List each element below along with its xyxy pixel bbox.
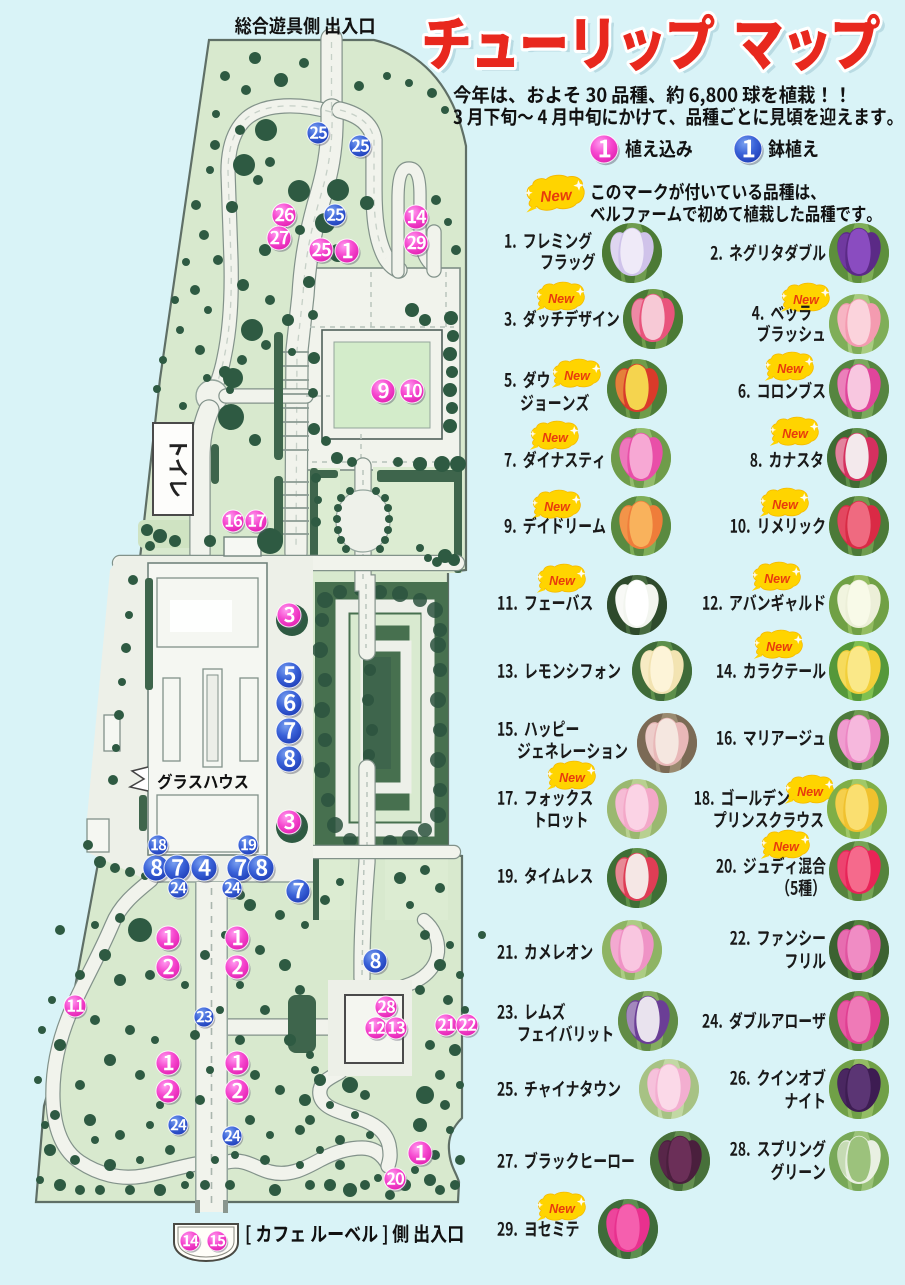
svg-text:New: New — [559, 771, 586, 785]
svg-text:New: New — [542, 431, 569, 445]
svg-text:New: New — [782, 427, 809, 441]
svg-text:New: New — [797, 785, 824, 799]
svg-text:New: New — [764, 572, 791, 586]
svg-text:New: New — [548, 292, 575, 306]
svg-text:New: New — [549, 574, 576, 588]
svg-text:New: New — [540, 187, 574, 206]
svg-text:New: New — [766, 640, 793, 654]
svg-text:New: New — [777, 362, 804, 376]
svg-text:New: New — [549, 1202, 576, 1216]
svg-text:New: New — [772, 498, 799, 512]
svg-text:New: New — [793, 293, 820, 307]
svg-text:New: New — [564, 369, 591, 383]
svg-text:New: New — [544, 500, 571, 514]
svg-text:New: New — [773, 840, 800, 854]
